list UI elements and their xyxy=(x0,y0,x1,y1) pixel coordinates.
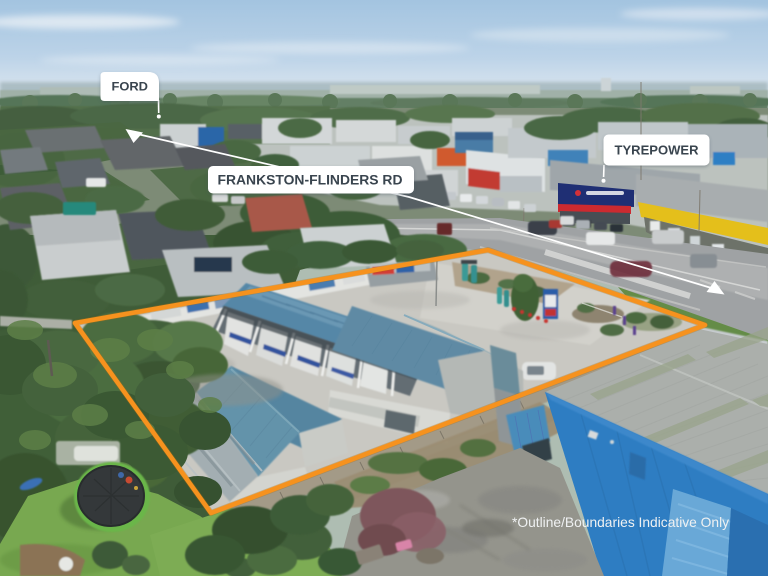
svg-text:*Outline/Boundaries Indicative: *Outline/Boundaries Indicative Only xyxy=(512,515,729,530)
svg-text:FORD: FORD xyxy=(112,82,149,94)
svg-text:TYREPOWER: TYREPOWER xyxy=(615,144,699,158)
svg-text:FRANKSTON-FLINDERS RD: FRANKSTON-FLINDERS RD xyxy=(218,172,403,187)
